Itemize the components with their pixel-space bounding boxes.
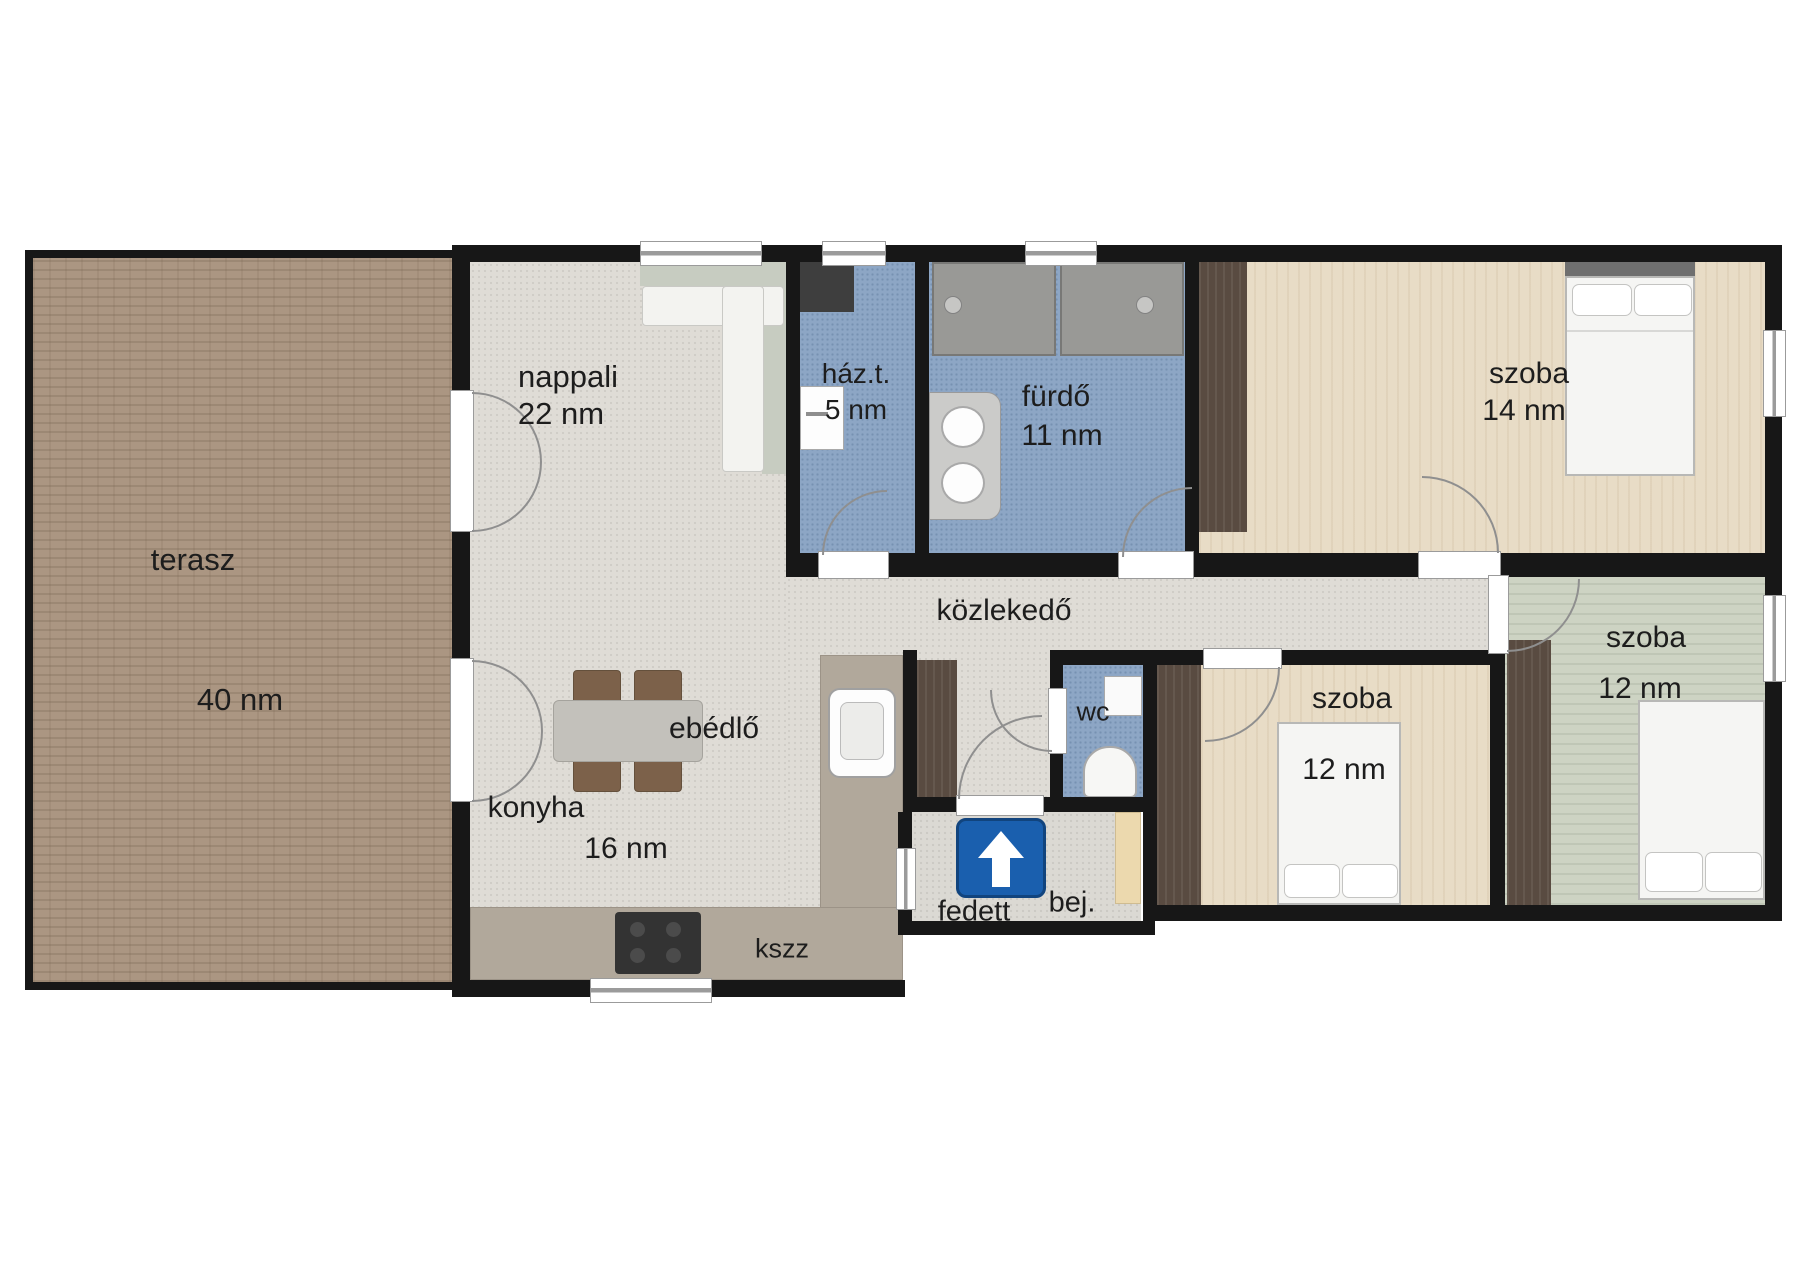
shower <box>1060 262 1184 356</box>
burner-icon <box>630 948 645 963</box>
window <box>822 241 886 266</box>
pillow <box>1284 864 1340 898</box>
floor-terrace <box>33 258 452 982</box>
up-arrow-icon <box>978 831 1024 858</box>
wall <box>1765 415 1782 595</box>
duvet-fold <box>1567 330 1693 332</box>
wardrobe <box>1199 262 1247 532</box>
dining-chair <box>573 758 621 792</box>
wall <box>1143 905 1782 921</box>
burner-icon <box>630 922 645 937</box>
wall <box>885 553 1120 577</box>
wall <box>1765 245 1782 330</box>
bed-headboard <box>1565 262 1695 276</box>
wall <box>452 980 590 997</box>
room-label-wc: wc <box>1077 697 1110 728</box>
vanity-sink <box>941 406 985 448</box>
wall <box>710 980 905 997</box>
wall <box>1765 680 1782 921</box>
wall <box>903 797 958 812</box>
wall <box>25 250 33 990</box>
room-area-furdo: 11 nm <box>1021 419 1102 453</box>
wall <box>898 921 1155 935</box>
window <box>1763 330 1786 417</box>
up-arrow-icon <box>992 855 1010 887</box>
wall <box>452 530 470 658</box>
vanity-sink <box>941 462 985 504</box>
wall <box>1278 650 1505 665</box>
wall <box>1063 650 1143 665</box>
room-label-terasz: terasz <box>151 542 235 578</box>
wall <box>25 982 452 990</box>
dining-chair <box>634 758 682 792</box>
room-label-szoba12-right: szoba <box>1606 621 1686 655</box>
wardrobe <box>1157 665 1201 905</box>
kitchen-sink-basin <box>840 702 884 760</box>
shower-head-icon <box>944 296 962 314</box>
pillow <box>1634 284 1692 316</box>
room-label-nappali: nappali <box>518 359 618 395</box>
toilet <box>1083 746 1137 798</box>
wc-sink <box>1104 676 1142 716</box>
dining-chair <box>634 670 682 704</box>
dining-chair <box>573 670 621 704</box>
pillow <box>1645 852 1703 892</box>
shoe-cabinet <box>1115 812 1141 904</box>
room-area-szoba12-left: 12 nm <box>1302 753 1385 787</box>
door <box>1203 648 1282 669</box>
wall <box>452 245 470 390</box>
window <box>590 978 712 1003</box>
room-area-szoba14: 14 nm <box>1482 394 1565 428</box>
room-area-nappali: 22 nm <box>518 396 604 432</box>
room-label-bej: bej. <box>1049 887 1096 920</box>
pillow <box>1705 852 1762 892</box>
wall <box>1143 650 1157 921</box>
wall <box>1050 650 1063 690</box>
window <box>1025 241 1097 266</box>
wall <box>25 250 452 258</box>
wall <box>452 800 470 982</box>
burner-icon <box>666 948 681 963</box>
pillow <box>1342 864 1398 898</box>
room-label-kozlekedo: közlekedő <box>936 594 1071 628</box>
burner-icon <box>666 922 681 937</box>
floor-plan: terasz 40 nm nappali 22 nm ebédlő konyha… <box>0 0 1811 1280</box>
wall <box>786 245 800 553</box>
sofa-seat <box>722 286 764 472</box>
door <box>450 658 474 802</box>
room-label-szoba14: szoba <box>1489 357 1569 391</box>
door <box>450 390 474 532</box>
pillow <box>1572 284 1632 316</box>
floor-hallway <box>786 577 1490 650</box>
room-area-hazt: 5 nm <box>825 394 887 426</box>
wardrobe <box>1507 640 1551 905</box>
wall <box>1050 797 1143 812</box>
shower-head-icon <box>1136 296 1154 314</box>
room-label-szoba12-left: szoba <box>1312 682 1392 716</box>
room-label-furdo: fürdő <box>1022 380 1090 414</box>
door <box>1488 575 1509 654</box>
wall <box>898 812 912 848</box>
wall <box>915 245 929 553</box>
wall <box>1490 650 1505 905</box>
room-label-konyha: konyha <box>488 791 585 825</box>
wall <box>903 650 917 812</box>
room-label-ebedlo: ebédlő <box>669 712 759 746</box>
entrance-arrow-sign <box>956 818 1046 898</box>
cooktop <box>615 912 701 974</box>
window <box>640 241 762 266</box>
wall <box>1190 553 1420 577</box>
room-label-hazt: ház.t. <box>822 358 890 390</box>
utility-appliance <box>800 262 854 312</box>
room-area-terasz: 40 nm <box>197 682 283 718</box>
wall <box>786 553 820 577</box>
wall <box>1497 553 1782 577</box>
wardrobe <box>917 660 957 802</box>
door <box>818 551 889 579</box>
window <box>1763 595 1786 682</box>
room-label-kszz: kszz <box>755 934 809 965</box>
window <box>896 848 916 910</box>
room-area-szoba12-right: 12 nm <box>1598 672 1681 706</box>
room-label-fedett: fedett <box>938 896 1011 929</box>
room-area-konyha: 16 nm <box>584 832 667 866</box>
